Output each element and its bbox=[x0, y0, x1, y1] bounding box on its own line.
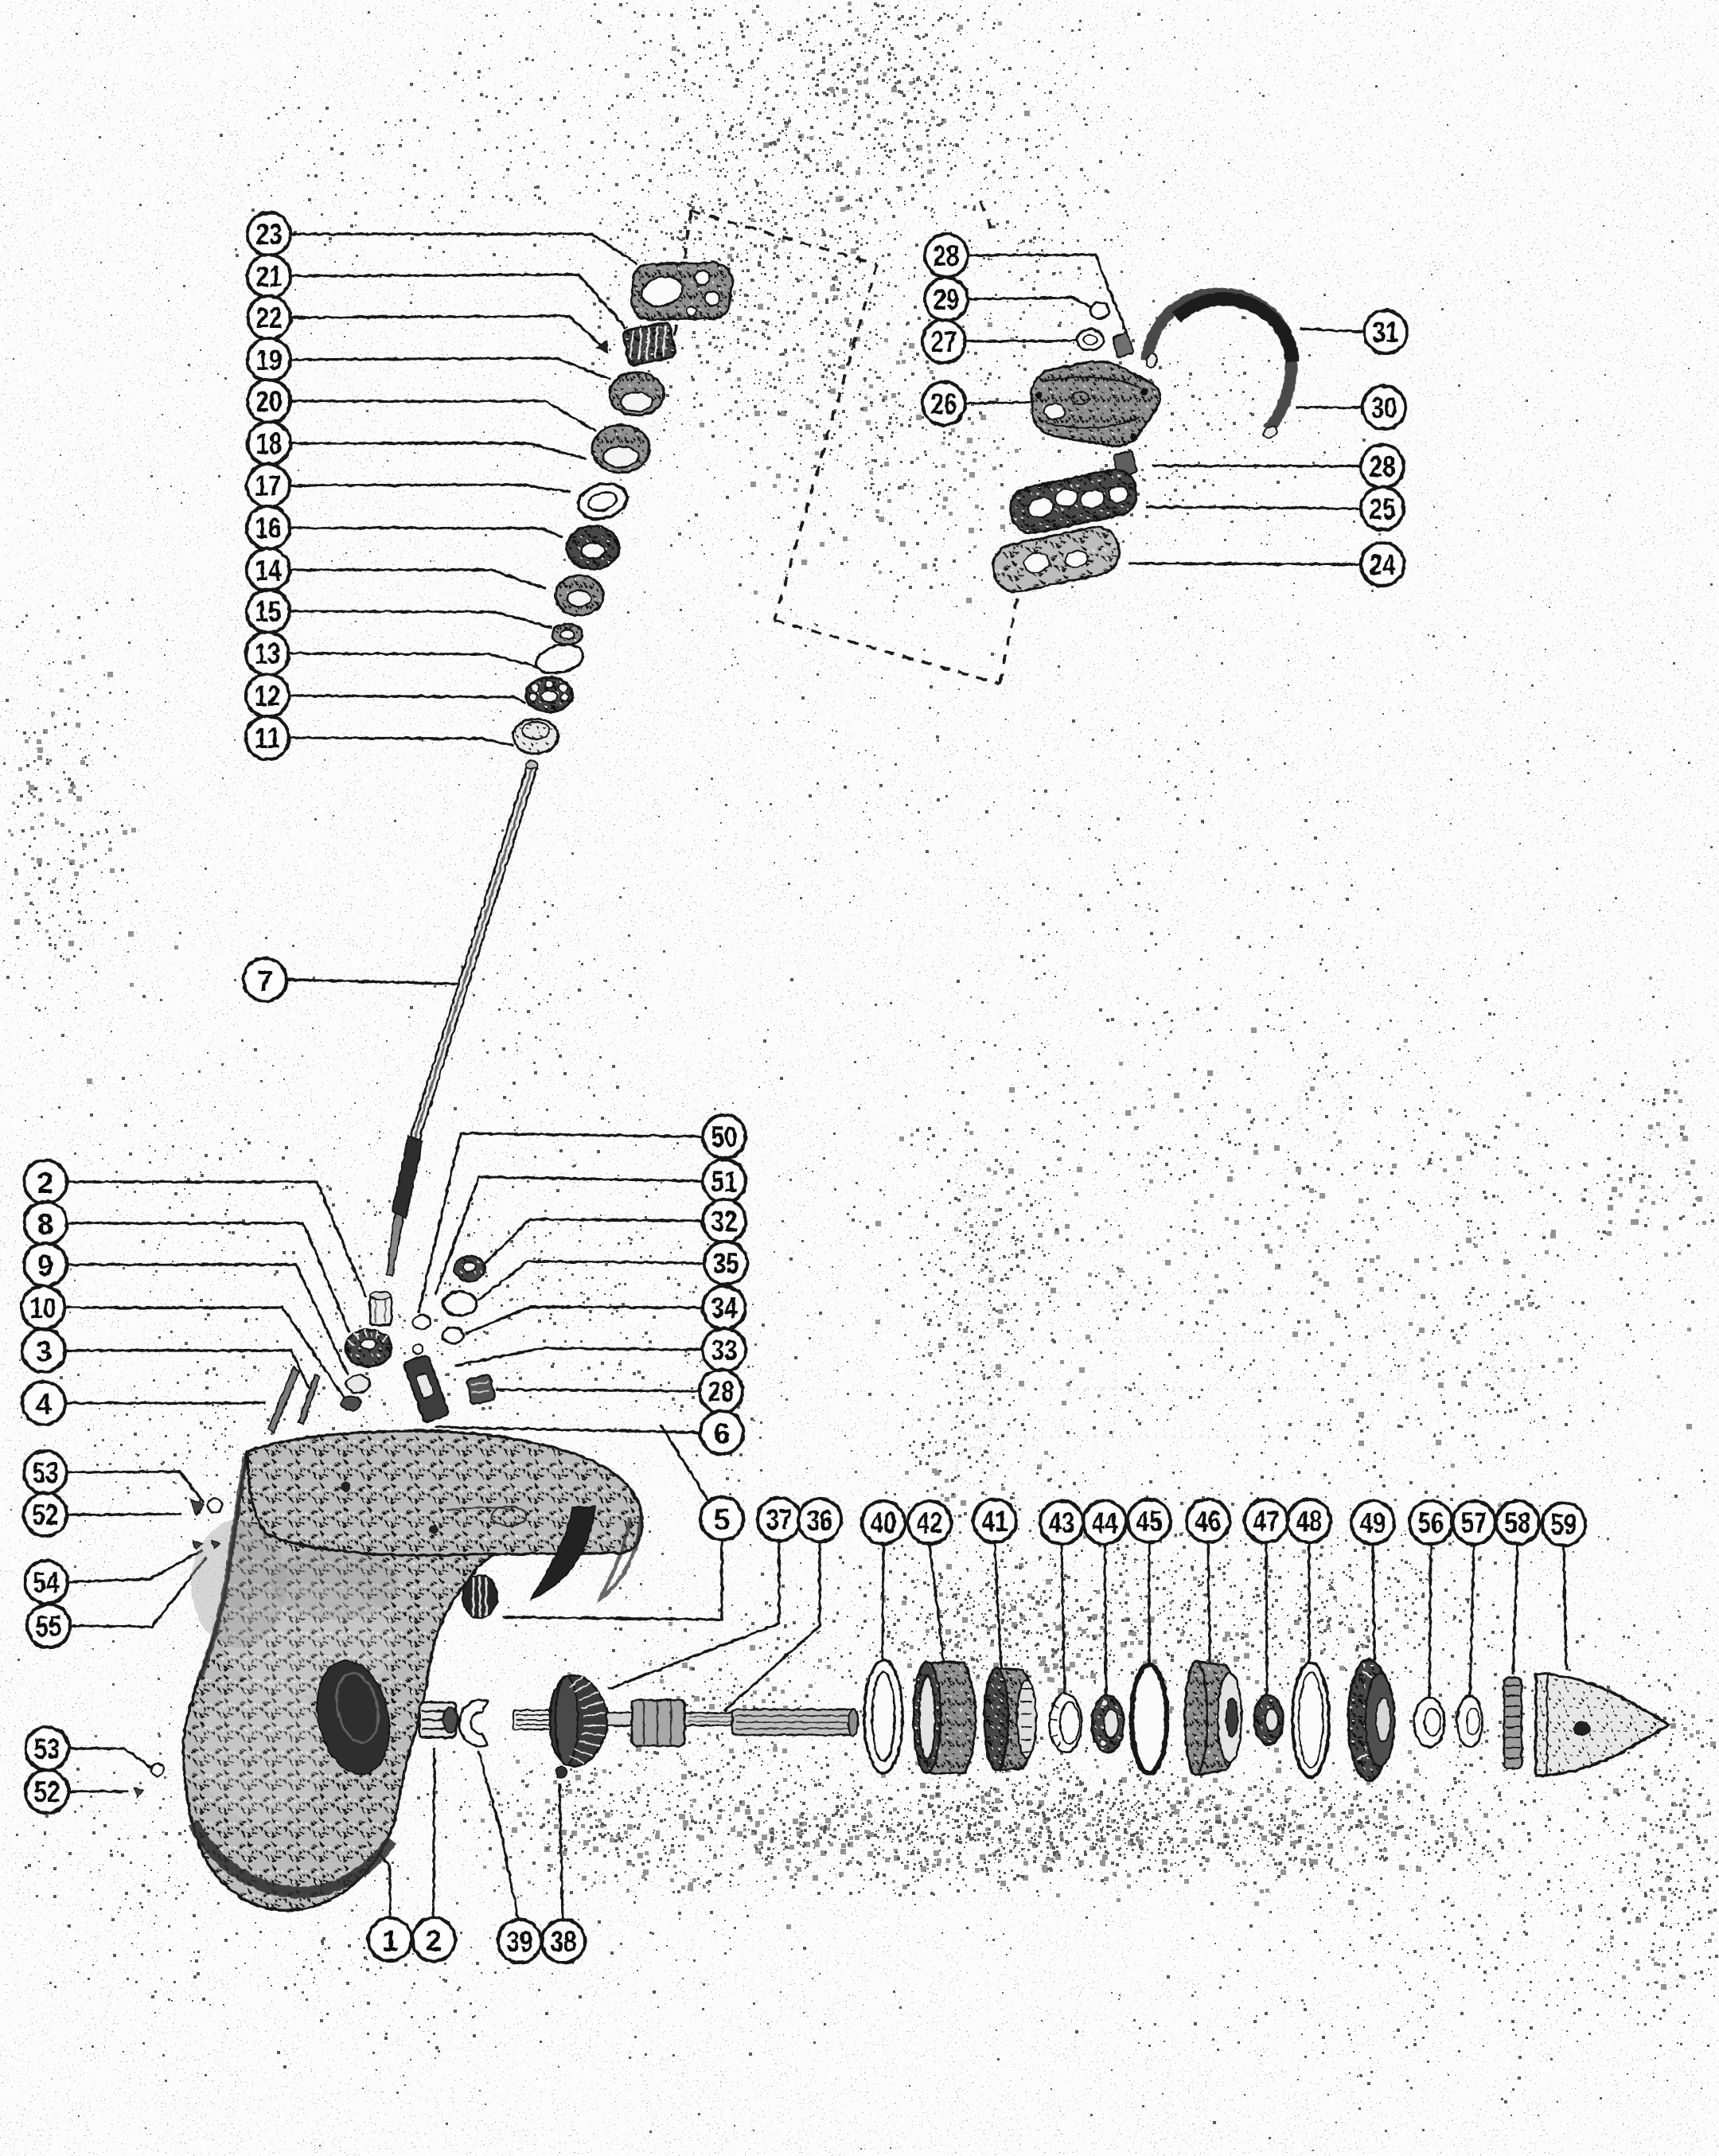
svg-text:47: 47 bbox=[1253, 1505, 1280, 1538]
svg-text:31: 31 bbox=[1373, 316, 1399, 349]
svg-text:48: 48 bbox=[1296, 1505, 1323, 1538]
svg-text:21: 21 bbox=[256, 260, 283, 293]
svg-text:13: 13 bbox=[255, 637, 281, 670]
svg-text:25: 25 bbox=[1370, 493, 1396, 525]
svg-text:5: 5 bbox=[714, 1503, 731, 1536]
svg-text:46: 46 bbox=[1195, 1505, 1222, 1538]
svg-text:1: 1 bbox=[382, 1924, 399, 1957]
svg-text:2: 2 bbox=[37, 1167, 54, 1199]
svg-text:16: 16 bbox=[255, 512, 282, 544]
svg-text:28: 28 bbox=[1370, 450, 1396, 483]
svg-text:6: 6 bbox=[714, 1417, 731, 1450]
svg-text:59: 59 bbox=[1551, 1508, 1577, 1541]
svg-text:10: 10 bbox=[30, 1292, 57, 1324]
svg-text:53: 53 bbox=[34, 1733, 60, 1765]
svg-text:39: 39 bbox=[507, 1925, 533, 1958]
svg-text:3: 3 bbox=[36, 1335, 53, 1368]
svg-text:18: 18 bbox=[256, 427, 283, 460]
svg-text:37: 37 bbox=[766, 1503, 793, 1536]
svg-text:57: 57 bbox=[1461, 1507, 1487, 1539]
svg-text:24: 24 bbox=[1370, 548, 1396, 581]
svg-text:56: 56 bbox=[1418, 1507, 1444, 1539]
svg-text:17: 17 bbox=[255, 470, 282, 502]
svg-text:27: 27 bbox=[931, 326, 957, 358]
svg-text:15: 15 bbox=[255, 595, 282, 628]
svg-text:41: 41 bbox=[982, 1505, 1008, 1538]
svg-text:14: 14 bbox=[255, 554, 282, 587]
svg-text:4: 4 bbox=[36, 1388, 53, 1421]
svg-text:44: 44 bbox=[1092, 1507, 1118, 1539]
svg-text:2: 2 bbox=[426, 1924, 442, 1957]
svg-text:29: 29 bbox=[934, 283, 960, 316]
svg-text:20: 20 bbox=[256, 385, 283, 418]
svg-text:35: 35 bbox=[713, 1247, 739, 1280]
svg-text:42: 42 bbox=[917, 1507, 943, 1539]
svg-text:52: 52 bbox=[34, 1776, 60, 1808]
svg-text:43: 43 bbox=[1049, 1507, 1075, 1539]
svg-text:9: 9 bbox=[37, 1250, 54, 1282]
svg-text:23: 23 bbox=[256, 218, 283, 251]
svg-text:28: 28 bbox=[708, 1375, 735, 1408]
svg-text:51: 51 bbox=[711, 1165, 738, 1198]
svg-text:26: 26 bbox=[931, 388, 957, 420]
svg-text:53: 53 bbox=[33, 1456, 59, 1489]
svg-text:33: 33 bbox=[711, 1334, 738, 1367]
svg-text:50: 50 bbox=[711, 1121, 738, 1153]
svg-text:55: 55 bbox=[36, 1610, 62, 1643]
svg-text:49: 49 bbox=[1360, 1507, 1386, 1539]
svg-text:45: 45 bbox=[1136, 1505, 1163, 1538]
svg-text:54: 54 bbox=[33, 1566, 60, 1599]
svg-text:52: 52 bbox=[33, 1499, 59, 1531]
svg-text:11: 11 bbox=[255, 722, 281, 754]
svg-text:32: 32 bbox=[711, 1205, 738, 1238]
svg-text:40: 40 bbox=[871, 1507, 897, 1539]
svg-text:30: 30 bbox=[1371, 392, 1397, 424]
svg-text:22: 22 bbox=[256, 302, 283, 334]
svg-text:7: 7 bbox=[257, 965, 274, 997]
svg-text:8: 8 bbox=[37, 1208, 54, 1241]
svg-text:19: 19 bbox=[256, 344, 283, 376]
svg-text:58: 58 bbox=[1505, 1507, 1531, 1539]
svg-text:38: 38 bbox=[551, 1925, 577, 1958]
svg-text:28: 28 bbox=[934, 240, 960, 272]
svg-text:36: 36 bbox=[807, 1504, 833, 1537]
svg-text:12: 12 bbox=[255, 680, 281, 712]
svg-text:34: 34 bbox=[711, 1292, 738, 1324]
